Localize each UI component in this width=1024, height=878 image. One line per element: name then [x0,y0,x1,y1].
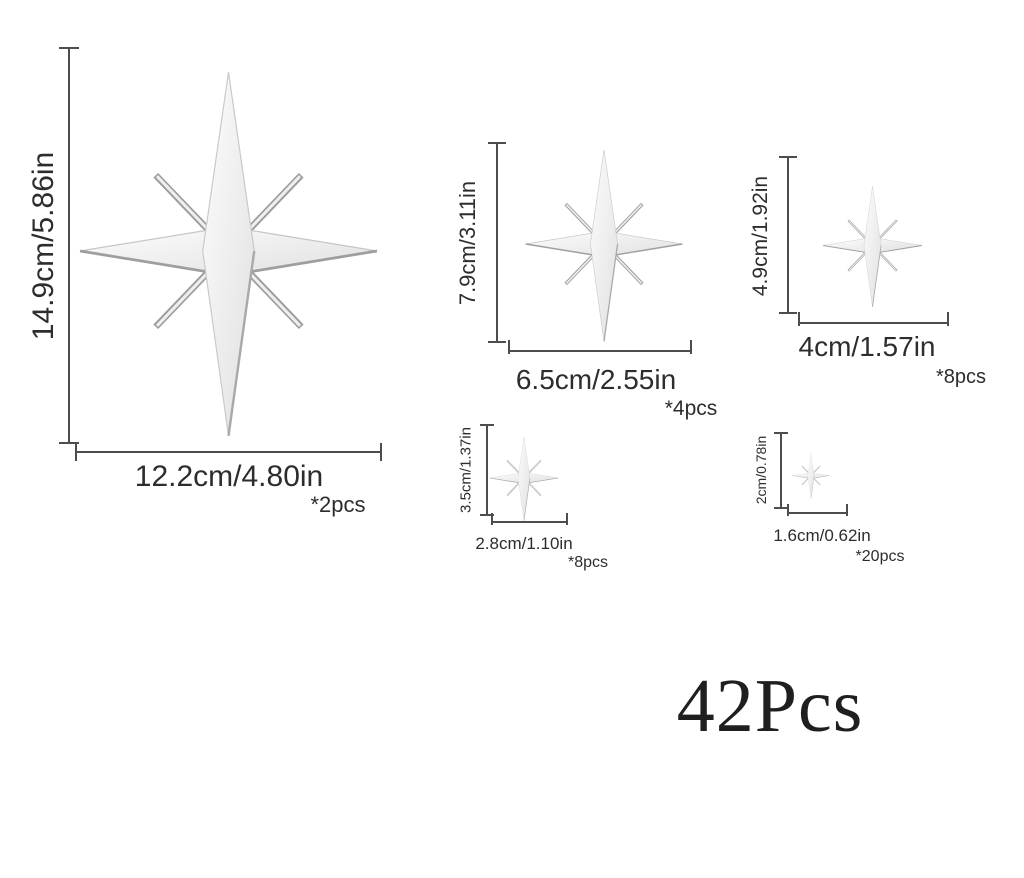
width-dimension-line [491,521,568,523]
width-dimension-line [787,512,848,514]
star-burst-icon [822,183,923,308]
star-burst-icon [523,145,685,343]
width-dimension-label: 6.5cm/2.55in [516,364,676,396]
width-dimension-label: 4cm/1.57in [799,331,936,363]
piece-count-label: *8pcs [568,554,608,572]
height-dimension-label: 4.9cm/1.92in [749,176,773,296]
height-dimension-line [486,425,488,515]
width-dimension-label: 12.2cm/4.80in [135,460,323,494]
width-dimension-label: 1.6cm/0.62in [773,526,870,546]
width-dimension-line [508,350,692,352]
star-burst-icon [77,62,380,440]
height-dimension-label: 2cm/0.78in [753,436,769,504]
piece-count-label: *8pcs [936,366,986,389]
height-dimension-line [496,143,498,342]
width-dimension-line [75,451,382,453]
height-dimension-line [780,433,782,508]
height-dimension-label: 7.9cm/3.11in [455,181,481,305]
star-burst-icon [489,434,559,522]
height-dimension-label: 14.9cm/5.86in [27,152,61,340]
width-dimension-label: 2.8cm/1.10in [475,534,572,554]
piece-count-label: *20pcs [856,548,905,566]
total-pieces-label: 42Pcs [677,668,864,744]
height-dimension-line [68,48,70,443]
star-burst-icon [792,452,830,499]
height-dimension-line [787,157,789,313]
height-dimension-label: 3.5cm/1.37in [458,427,475,513]
width-dimension-line [798,322,949,324]
piece-count-label: *2pcs [310,492,365,518]
piece-count-label: *4pcs [665,397,718,421]
